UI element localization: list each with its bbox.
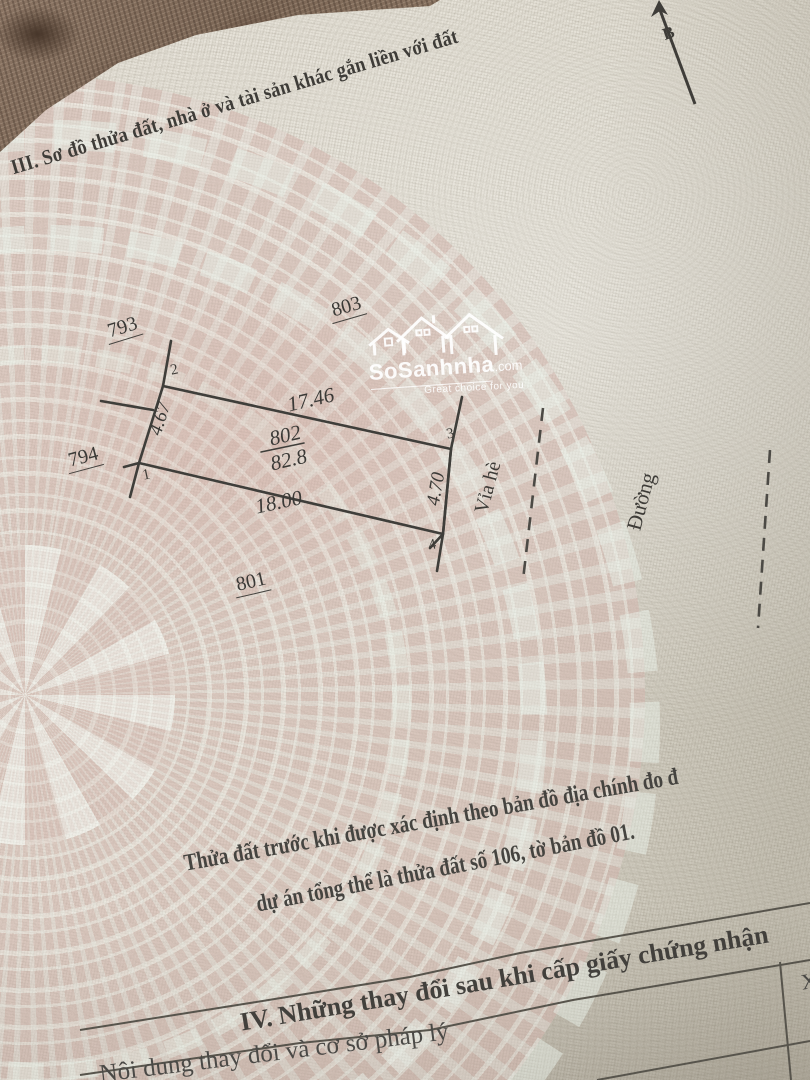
certificate-photo: III. Sơ đồ thửa đất, nhà ở và tài sản kh… [0, 0, 810, 1080]
